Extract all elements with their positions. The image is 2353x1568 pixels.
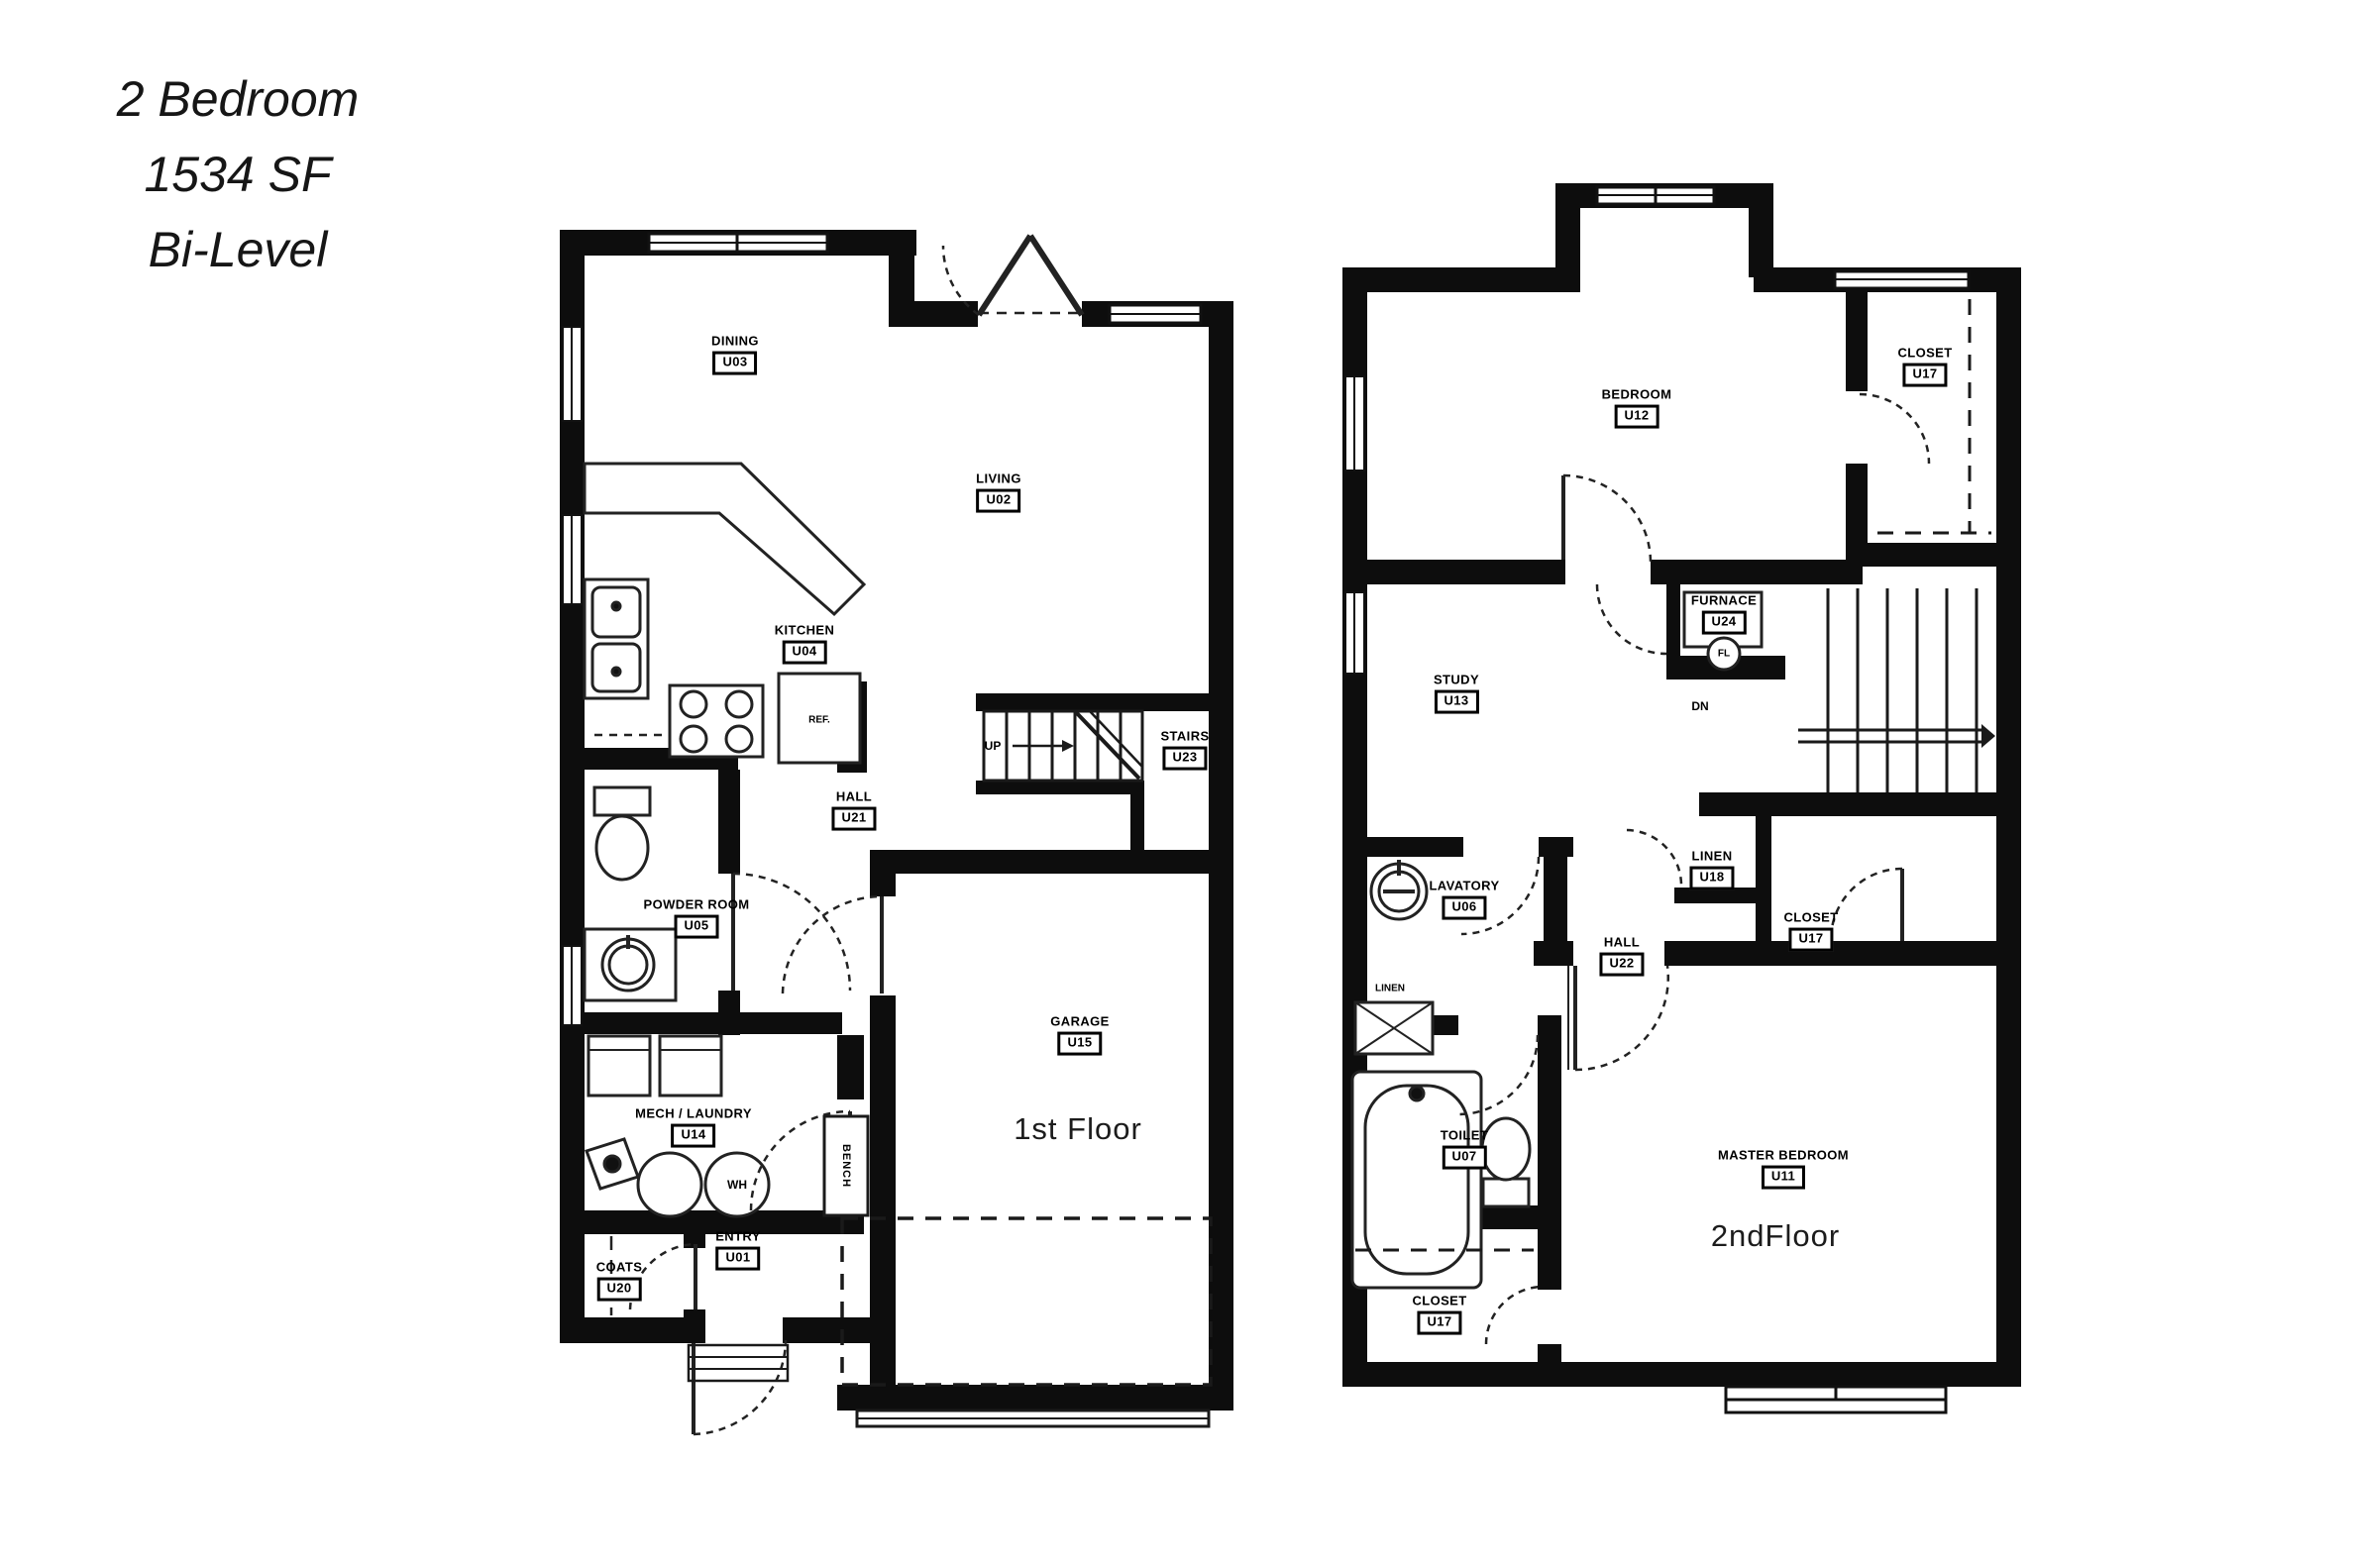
room-name: ENTRY	[715, 1230, 761, 1245]
room-label-closet-top: CLOSET U17	[1897, 347, 1952, 387]
room-label-hall-1: HALL U21	[831, 790, 876, 831]
appliance	[588, 1036, 650, 1096]
refrigerator-note: REF.	[808, 715, 830, 726]
room-code: U22	[1599, 953, 1644, 977]
room-label-powder-room: POWDER ROOM U05	[644, 898, 750, 939]
room-name: DINING	[711, 335, 759, 350]
linen-small-note: LINEN	[1375, 984, 1405, 994]
room-name: LIVING	[976, 472, 1021, 487]
room-label-hall-2: HALL U22	[1599, 936, 1644, 977]
toilet-tank	[594, 787, 650, 815]
room-name: POWDER ROOM	[644, 898, 750, 913]
water-heater-note: WH	[727, 1178, 747, 1192]
room-label-study: STUDY U13	[1434, 674, 1479, 714]
room-code: U17	[1417, 1311, 1461, 1335]
room-name: BEDROOM	[1602, 388, 1672, 403]
floor1-caption: 1st Floor	[1014, 1111, 1142, 1147]
stairs-up-note: UP	[985, 739, 1002, 753]
room-code: U17	[1902, 364, 1947, 387]
toilet-bowl	[1482, 1118, 1530, 1180]
washer	[638, 1153, 701, 1216]
room-name: COATS	[596, 1261, 643, 1276]
room-code: U17	[1788, 928, 1833, 952]
room-code: U20	[596, 1278, 641, 1302]
room-label-entry: ENTRY U01	[715, 1230, 761, 1271]
floor1-entry-double-door	[943, 236, 1082, 315]
stairs-dn-note: DN	[1691, 699, 1708, 713]
room-code: U05	[674, 915, 718, 939]
bench-note: BENCH	[840, 1144, 852, 1188]
room-code: U11	[1762, 1166, 1805, 1190]
floor1-stairs	[984, 711, 1142, 781]
floor-drain-note: FL	[1718, 649, 1730, 660]
floor2-caption: 2ndFloor	[1711, 1218, 1840, 1254]
room-name: MECH / LAUNDRY	[635, 1107, 752, 1122]
room-code: U02	[976, 489, 1020, 513]
room-label-linen: LINEN U18	[1689, 850, 1734, 890]
room-name: TOILET	[1441, 1129, 1488, 1144]
room-code: U14	[671, 1124, 715, 1148]
room-code: U07	[1442, 1146, 1486, 1170]
room-code: U13	[1434, 690, 1478, 714]
room-name: HALL	[831, 790, 876, 805]
floor1-garage-door	[689, 1116, 1211, 1426]
toilet-tank	[1483, 1179, 1529, 1206]
room-name: KITCHEN	[775, 624, 835, 639]
room-name: LINEN	[1689, 850, 1734, 865]
room-code: U23	[1162, 747, 1207, 771]
room-label-kitchen: KITCHEN U04	[775, 624, 835, 665]
room-name: LAVATORY	[1429, 880, 1499, 894]
floor1-powder-room-fixtures	[585, 787, 676, 1000]
room-label-master-bedroom: MASTER BEDROOM U11	[1718, 1149, 1849, 1190]
room-label-living: LIVING U02	[976, 472, 1021, 513]
room-code: U03	[712, 352, 757, 375]
room-label-lavatory: LAVATORY U06	[1429, 880, 1499, 920]
room-name: MASTER BEDROOM	[1718, 1149, 1849, 1164]
room-label-toilet: TOILET U07	[1441, 1129, 1488, 1170]
room-label-coats: COATS U20	[596, 1261, 643, 1302]
room-name: FURNACE	[1691, 594, 1757, 609]
room-code: U15	[1057, 1032, 1102, 1056]
room-code: U12	[1614, 405, 1658, 429]
room-name: GARAGE	[1050, 1015, 1109, 1030]
room-code: U21	[831, 807, 876, 831]
room-name: CLOSET	[1783, 911, 1838, 926]
appliance	[660, 1036, 721, 1096]
room-name: CLOSET	[1897, 347, 1952, 362]
floorplan-canvas: 2 Bedroom 1534 SF Bi-Level DINING U03 LI…	[0, 0, 2353, 1568]
room-name: HALL	[1599, 936, 1644, 951]
room-label-stairs: STAIRS U23	[1160, 730, 1209, 771]
plan-title-line3: Bi-Level	[59, 212, 416, 287]
room-label-mech-laundry: MECH / LAUNDRY U14	[635, 1107, 752, 1148]
toilet-bowl	[596, 816, 648, 880]
room-label-garage: GARAGE U15	[1050, 1015, 1109, 1056]
room-label-dining: DINING U03	[711, 335, 759, 375]
room-code: U01	[715, 1247, 760, 1271]
room-label-closet-bottom: CLOSET U17	[1412, 1295, 1466, 1335]
room-label-bedroom: BEDROOM U12	[1602, 388, 1672, 429]
floor1-walls	[560, 230, 1233, 1411]
room-name: CLOSET	[1412, 1295, 1466, 1309]
room-name: STUDY	[1434, 674, 1479, 688]
room-code: U24	[1701, 611, 1746, 635]
room-code: U06	[1442, 896, 1486, 920]
floor2-stairs	[1798, 588, 1995, 792]
plan-title: 2 Bedroom 1534 SF Bi-Level	[59, 61, 416, 287]
room-code: U18	[1689, 867, 1734, 890]
room-code: U04	[782, 641, 826, 665]
plan-title-line2: 1534 SF	[59, 137, 416, 212]
room-label-furnace: FURNACE U24	[1691, 594, 1757, 635]
room-label-closet-mid: CLOSET U17	[1783, 911, 1838, 952]
plan-title-line1: 2 Bedroom	[59, 61, 416, 137]
room-name: STAIRS	[1160, 730, 1209, 745]
